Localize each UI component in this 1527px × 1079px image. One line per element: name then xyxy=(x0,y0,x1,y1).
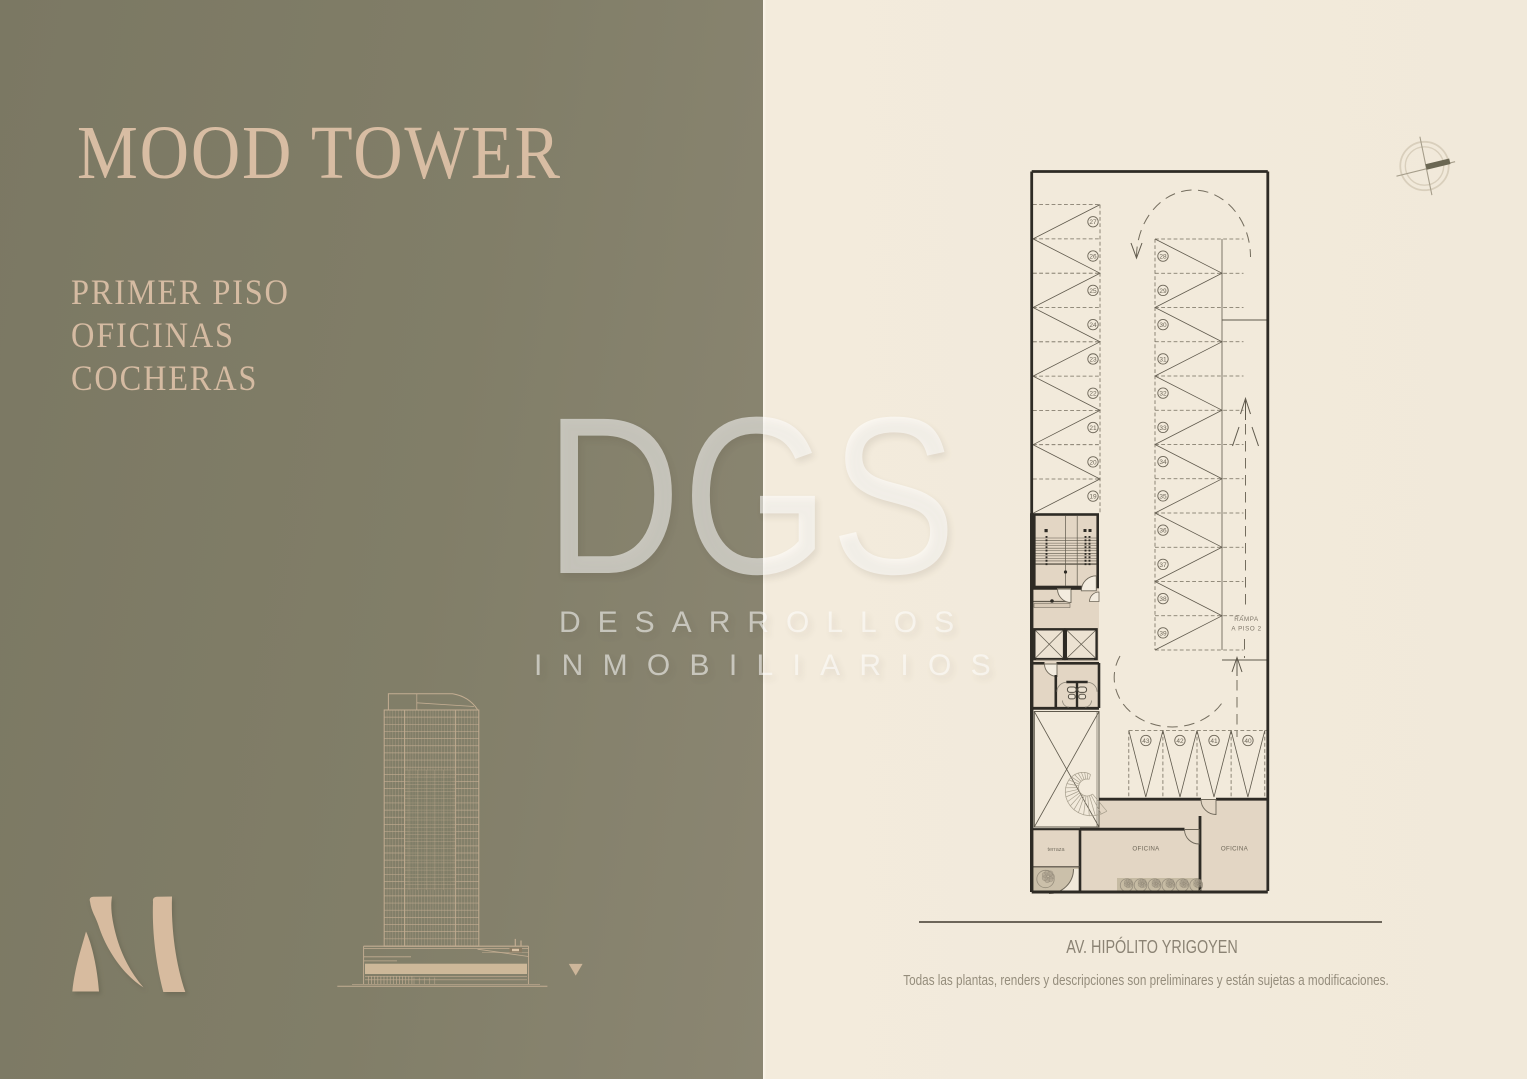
svg-text:26: 26 xyxy=(1089,253,1097,260)
svg-text:21: 21 xyxy=(1089,425,1097,432)
svg-text:RAMPA: RAMPA xyxy=(1234,616,1259,623)
svg-text:30: 30 xyxy=(1159,322,1167,329)
svg-text:terraza: terraza xyxy=(1047,847,1065,853)
svg-text:33: 33 xyxy=(1159,425,1167,432)
svg-text:37: 37 xyxy=(1159,562,1167,569)
svg-text:36: 36 xyxy=(1159,528,1167,535)
svg-text:28: 28 xyxy=(1159,254,1167,261)
svg-text:32: 32 xyxy=(1159,391,1167,398)
svg-text:19: 19 xyxy=(1089,494,1097,501)
svg-text:24: 24 xyxy=(1089,322,1097,329)
svg-text:27: 27 xyxy=(1089,219,1097,226)
svg-text:25: 25 xyxy=(1089,288,1097,295)
svg-text:29: 29 xyxy=(1159,288,1167,295)
svg-text:41: 41 xyxy=(1210,738,1218,745)
svg-text:39: 39 xyxy=(1159,630,1167,637)
svg-text:43: 43 xyxy=(1142,738,1150,745)
svg-text:40: 40 xyxy=(1244,738,1252,745)
svg-text:31: 31 xyxy=(1159,356,1167,363)
svg-text:42: 42 xyxy=(1176,738,1184,745)
svg-text:A PISO 2: A PISO 2 xyxy=(1231,626,1261,633)
svg-text:38: 38 xyxy=(1159,596,1167,603)
svg-text:OFICINA: OFICINA xyxy=(1221,846,1249,853)
svg-text:23: 23 xyxy=(1089,356,1097,363)
svg-text:22: 22 xyxy=(1089,391,1097,398)
svg-text:34: 34 xyxy=(1159,459,1167,466)
svg-text:35: 35 xyxy=(1159,493,1167,500)
svg-text:OFICINA: OFICINA xyxy=(1132,846,1160,853)
svg-text:20: 20 xyxy=(1089,459,1097,466)
